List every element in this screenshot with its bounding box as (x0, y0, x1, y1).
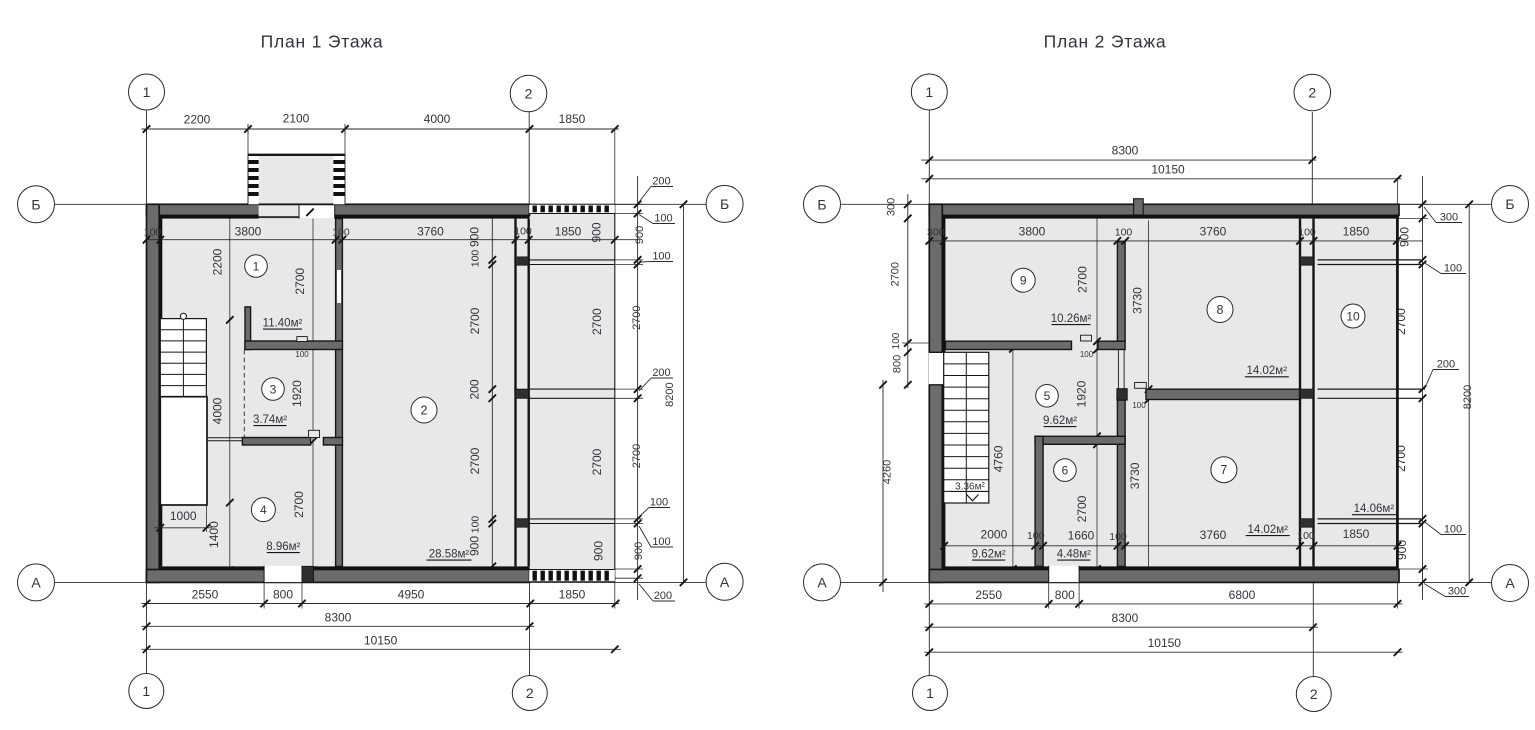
svg-text:8200: 8200 (664, 382, 676, 406)
svg-text:1850: 1850 (559, 588, 586, 602)
svg-text:7: 7 (1220, 463, 1227, 477)
svg-text:100: 100 (1132, 401, 1146, 410)
svg-text:3.74м²: 3.74м² (253, 414, 287, 426)
svg-text:10.26м²: 10.26м² (1051, 313, 1092, 325)
svg-text:3730: 3730 (1128, 462, 1142, 489)
svg-text:100: 100 (1298, 227, 1316, 239)
svg-text:6: 6 (1062, 463, 1069, 477)
svg-text:100: 100 (650, 497, 668, 509)
svg-text:Б: Б (720, 196, 729, 212)
svg-text:2700: 2700 (293, 268, 307, 295)
svg-text:6800: 6800 (1229, 588, 1256, 602)
svg-text:100: 100 (891, 332, 902, 349)
svg-text:2: 2 (526, 685, 534, 701)
svg-text:800: 800 (892, 355, 904, 373)
svg-text:4.48м²: 4.48м² (1057, 549, 1091, 561)
svg-text:8300: 8300 (325, 611, 352, 625)
svg-text:2: 2 (1310, 686, 1318, 702)
svg-text:300: 300 (1440, 212, 1458, 224)
svg-text:План 2 Этажа: План 2 Этажа (1044, 32, 1167, 52)
svg-text:100: 100 (1080, 350, 1094, 359)
svg-text:Б: Б (31, 196, 40, 212)
svg-text:А: А (817, 574, 827, 590)
svg-text:100: 100 (1027, 530, 1045, 542)
svg-text:2: 2 (421, 404, 428, 418)
svg-text:14.06м²: 14.06м² (1354, 503, 1395, 515)
svg-text:900: 900 (592, 541, 606, 561)
svg-text:1920: 1920 (1075, 380, 1089, 407)
svg-text:4950: 4950 (398, 588, 425, 602)
svg-text:2700: 2700 (590, 308, 604, 335)
svg-text:3800: 3800 (1019, 225, 1046, 239)
svg-text:8300: 8300 (1112, 611, 1139, 625)
svg-text:1000: 1000 (170, 509, 197, 523)
svg-text:1850: 1850 (559, 112, 586, 126)
svg-text:200: 200 (468, 379, 482, 399)
svg-text:8.96м²: 8.96м² (266, 541, 300, 553)
svg-text:1: 1 (925, 84, 933, 100)
svg-text:2700: 2700 (890, 262, 902, 286)
svg-text:900: 900 (468, 227, 482, 247)
svg-text:4: 4 (260, 503, 267, 517)
svg-text:2200: 2200 (184, 113, 211, 127)
svg-text:300: 300 (927, 227, 945, 239)
svg-text:2100: 2100 (283, 112, 310, 126)
svg-text:1850: 1850 (555, 225, 582, 239)
svg-text:100: 100 (1115, 227, 1133, 239)
svg-text:Б: Б (817, 196, 826, 212)
svg-text:1: 1 (142, 683, 150, 699)
svg-text:3760: 3760 (1200, 528, 1227, 542)
svg-text:1920: 1920 (290, 380, 304, 407)
svg-text:100: 100 (1109, 531, 1127, 543)
svg-text:900: 900 (633, 542, 645, 560)
svg-text:2: 2 (1308, 85, 1316, 101)
svg-text:2000: 2000 (981, 528, 1008, 542)
svg-text:1850: 1850 (1343, 527, 1370, 541)
svg-text:200: 200 (654, 590, 672, 602)
svg-text:2700: 2700 (631, 305, 643, 329)
svg-text:3760: 3760 (417, 225, 444, 239)
svg-text:300: 300 (1448, 586, 1466, 598)
svg-text:4260: 4260 (882, 460, 894, 484)
svg-text:2700: 2700 (292, 491, 306, 518)
svg-text:3: 3 (270, 382, 277, 396)
svg-text:10150: 10150 (1151, 163, 1185, 177)
svg-text:10150: 10150 (364, 634, 398, 648)
svg-text:100: 100 (295, 350, 309, 359)
svg-text:1: 1 (926, 685, 934, 701)
svg-text:100: 100 (514, 226, 532, 238)
svg-text:100: 100 (1297, 530, 1315, 542)
svg-text:3800: 3800 (235, 225, 262, 239)
svg-text:2700: 2700 (631, 444, 643, 468)
svg-text:100: 100 (652, 536, 670, 548)
svg-text:100: 100 (332, 227, 350, 239)
svg-text:Б: Б (1505, 196, 1514, 212)
svg-text:300: 300 (886, 198, 898, 216)
svg-text:1660: 1660 (1068, 529, 1095, 543)
svg-text:План 1 Этажа: План 1 Этажа (261, 32, 384, 52)
svg-text:14.02м²: 14.02м² (1247, 365, 1288, 377)
svg-text:2700: 2700 (468, 447, 482, 474)
svg-text:4000: 4000 (424, 112, 451, 126)
svg-text:100: 100 (470, 250, 482, 268)
svg-text:200: 200 (1437, 359, 1455, 371)
svg-text:200: 200 (652, 367, 670, 379)
svg-text:11.40м²: 11.40м² (263, 318, 303, 330)
svg-text:100: 100 (654, 213, 672, 225)
svg-text:А: А (1505, 575, 1515, 591)
svg-text:28.58м²: 28.58м² (429, 549, 470, 561)
svg-text:2200: 2200 (210, 248, 224, 275)
svg-text:9.62м²: 9.62м² (972, 549, 1006, 561)
svg-text:900: 900 (468, 536, 482, 556)
svg-text:8300: 8300 (1112, 144, 1139, 158)
svg-text:1850: 1850 (1343, 225, 1370, 239)
svg-text:1: 1 (253, 259, 260, 273)
svg-text:100: 100 (1444, 524, 1462, 536)
svg-text:2: 2 (525, 86, 533, 102)
svg-text:2700: 2700 (468, 307, 482, 334)
svg-text:8200: 8200 (1462, 385, 1474, 409)
svg-text:10150: 10150 (1148, 636, 1182, 650)
svg-text:9: 9 (1020, 274, 1027, 288)
svg-text:14.02м²: 14.02м² (1247, 524, 1288, 536)
svg-text:800: 800 (273, 588, 293, 602)
svg-text:10: 10 (1346, 309, 1360, 323)
svg-text:9.62м²: 9.62м² (1043, 415, 1077, 427)
svg-text:100: 100 (652, 251, 670, 263)
svg-text:100: 100 (470, 516, 482, 534)
svg-text:2550: 2550 (192, 588, 219, 602)
svg-text:2700: 2700 (1076, 266, 1090, 293)
svg-text:4760: 4760 (992, 445, 1006, 472)
svg-text:2700: 2700 (1075, 495, 1089, 522)
svg-text:800: 800 (1055, 588, 1075, 602)
svg-text:1: 1 (143, 84, 151, 100)
svg-text:А: А (31, 574, 41, 590)
svg-text:А: А (720, 574, 730, 590)
svg-text:900: 900 (634, 226, 646, 244)
svg-text:2700: 2700 (590, 448, 604, 475)
svg-text:200: 200 (652, 176, 670, 188)
svg-text:4000: 4000 (210, 397, 224, 424)
svg-text:100: 100 (1444, 263, 1462, 275)
svg-text:3730: 3730 (1131, 287, 1145, 314)
svg-text:8: 8 (1217, 303, 1224, 317)
svg-text:5: 5 (1044, 389, 1051, 403)
svg-text:2550: 2550 (975, 588, 1002, 602)
svg-text:3760: 3760 (1200, 225, 1227, 239)
svg-text:100: 100 (144, 227, 162, 239)
